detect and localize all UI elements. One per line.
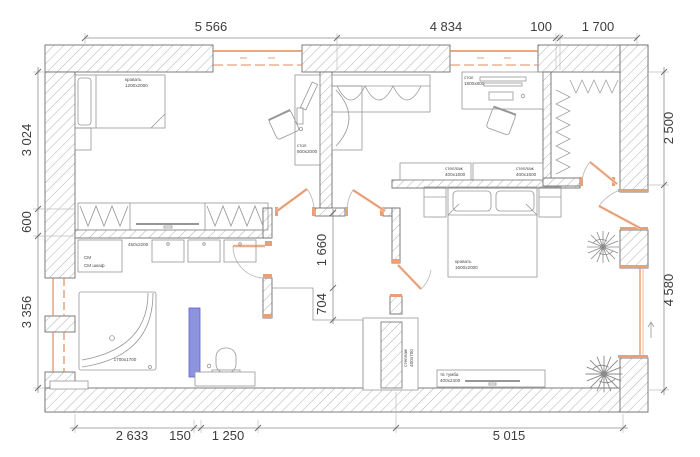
plant-icon bbox=[587, 231, 619, 263]
desk2-label: стол bbox=[464, 75, 474, 80]
door-leaf-wardrobe bbox=[590, 162, 617, 184]
dim-top-2: 4 834 bbox=[430, 19, 463, 34]
desk1-label: стол bbox=[297, 143, 307, 148]
hangers-icon bbox=[80, 206, 128, 226]
window-left-lower bbox=[53, 332, 64, 372]
bed1-pillow bbox=[78, 78, 91, 125]
toilet bbox=[216, 348, 236, 373]
hangers-icon bbox=[570, 80, 618, 93]
drain-icon bbox=[110, 336, 115, 341]
dim-top-1: 5 566 bbox=[195, 19, 228, 34]
tv-stand-label: тв тумба bbox=[440, 372, 459, 377]
door-leaf-balcony bbox=[599, 206, 640, 228]
mouse2-icon bbox=[521, 94, 525, 98]
desk2-size: 1800x800 bbox=[464, 81, 485, 86]
dim-left-2: 600 bbox=[19, 211, 34, 233]
desk2 bbox=[462, 72, 543, 109]
monitor1-icon bbox=[300, 82, 317, 110]
dim-inner-2: 704 bbox=[314, 293, 329, 315]
tv-stand-size: 400x2400 bbox=[440, 378, 461, 383]
washer-label-1: СМ bbox=[84, 255, 91, 260]
dim-right-2: 4 580 bbox=[661, 274, 676, 307]
door-leaf-living-left bbox=[277, 189, 307, 211]
dim-inner-1: 1 660 bbox=[314, 234, 329, 267]
blue-partition bbox=[189, 308, 200, 377]
opening-arrow-icon bbox=[648, 322, 654, 338]
window-left-upper bbox=[53, 278, 64, 316]
bed2-pillow bbox=[453, 191, 491, 211]
sofa-chaise bbox=[332, 86, 362, 150]
tub-size: 1700x1700 bbox=[114, 357, 137, 362]
monitor2-icon bbox=[480, 77, 526, 81]
dim-right-1: 2 500 bbox=[661, 112, 676, 145]
shelf1-label: стеллаж bbox=[445, 166, 464, 171]
plant-icon bbox=[586, 356, 623, 393]
column-unit-size: 400x700 bbox=[409, 349, 414, 367]
floor-plan-page: кровать 1200x2000 стол 600x2000 стол 180… bbox=[0, 0, 700, 457]
window-top-living bbox=[450, 51, 538, 65]
hangers-icon bbox=[556, 90, 570, 174]
floor-plan-canvas: кровать 1200x2000 стол 600x2000 стол 180… bbox=[0, 0, 700, 457]
dim-bottom-2: 150 bbox=[169, 428, 191, 443]
upper-cabinet bbox=[152, 240, 184, 262]
nightstand2 bbox=[424, 187, 446, 217]
furniture-kitchen bbox=[78, 240, 256, 272]
bed2-pillow bbox=[496, 191, 534, 211]
door-leaf-bedroom2 bbox=[398, 265, 421, 289]
bed1-size: 1200x2000 bbox=[125, 83, 148, 88]
dim-top-4: 1 700 bbox=[582, 19, 615, 34]
dim-bottom-4: 5 015 bbox=[493, 428, 526, 443]
bed2-size: 1600x2000 bbox=[455, 265, 478, 270]
upper-cabinet bbox=[224, 240, 256, 262]
nightstand1 bbox=[75, 128, 91, 150]
furniture-wardrobe bbox=[556, 80, 618, 174]
mouse1-icon bbox=[299, 127, 302, 130]
window-top-bedroom1 bbox=[213, 51, 302, 65]
bed1 bbox=[75, 75, 165, 128]
shelf1-size: 400x1600 bbox=[445, 172, 466, 177]
door-leaf-living-right bbox=[353, 190, 385, 211]
keyboard1-icon bbox=[297, 108, 303, 124]
keyboard2-icon bbox=[489, 92, 513, 100]
shelf2-label: стеллаж bbox=[516, 166, 535, 171]
counter bbox=[195, 372, 255, 386]
furniture-labels: кровать 1200x2000 стол 600x2000 стол 180… bbox=[84, 75, 537, 383]
column-unit-label: стеллаж bbox=[403, 348, 408, 367]
window-right-glazing bbox=[640, 268, 654, 358]
dim-top-3: 100 bbox=[530, 19, 552, 34]
desk1-size: 600x2000 bbox=[297, 149, 318, 154]
nightstand3 bbox=[539, 187, 561, 217]
hangers-icon bbox=[207, 206, 263, 226]
upper-cabinet bbox=[188, 240, 220, 262]
bed2-label: кровать bbox=[455, 259, 472, 264]
cabinet-size: 450x2200 bbox=[128, 242, 149, 247]
furniture-bedroom2 bbox=[400, 163, 622, 392]
shelf2-size: 400x1600 bbox=[516, 172, 537, 177]
washer-label-2: СМ шкаф bbox=[84, 263, 105, 268]
bench bbox=[50, 381, 88, 389]
dim-left-1: 3 024 bbox=[19, 124, 34, 157]
dim-left-3: 3 356 bbox=[19, 296, 34, 329]
chair2 bbox=[486, 107, 516, 136]
dim-bottom-1: 2 633 bbox=[116, 428, 149, 443]
furniture-living bbox=[332, 72, 543, 150]
dim-bottom-3: 1 250 bbox=[212, 428, 245, 443]
furniture-bathroom bbox=[50, 292, 255, 389]
bed1-label: кровать bbox=[125, 77, 142, 82]
